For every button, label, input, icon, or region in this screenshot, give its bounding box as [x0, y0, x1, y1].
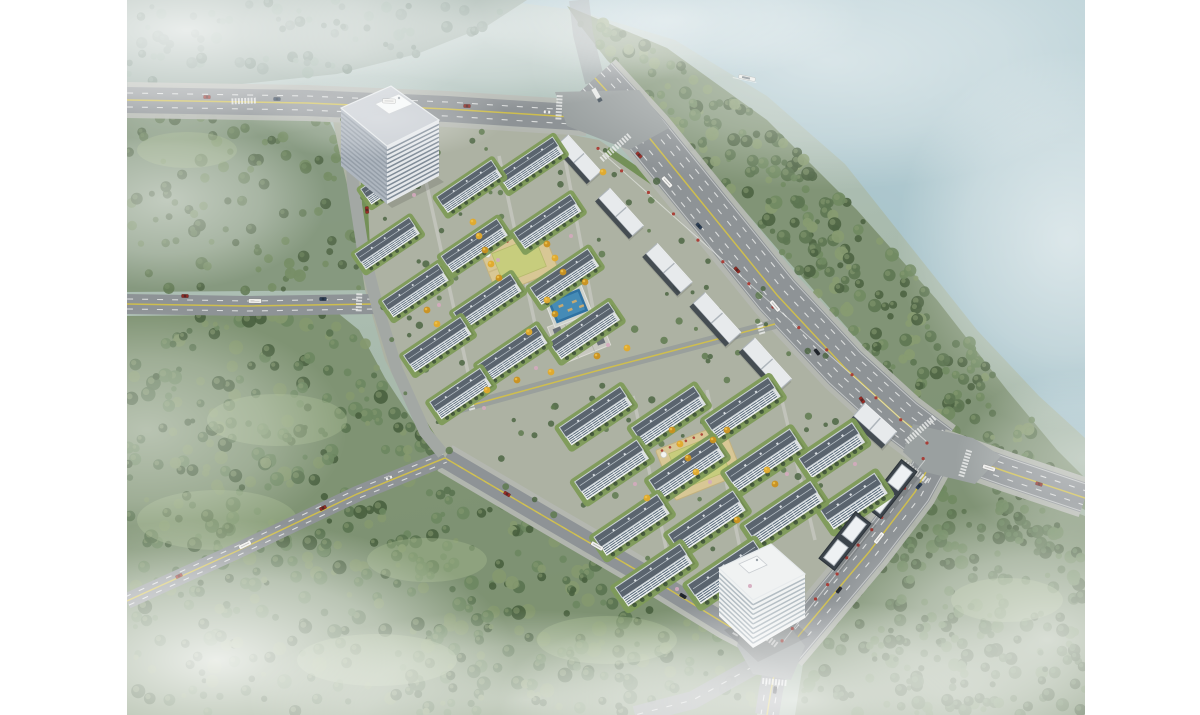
right-margin — [1085, 0, 1200, 715]
car-vehicle — [181, 294, 188, 298]
render-scene — [127, 0, 1085, 715]
bus-vehicle — [248, 299, 261, 304]
render-area — [127, 0, 1085, 715]
car-vehicle — [543, 110, 550, 114]
car-vehicle — [365, 206, 369, 213]
architectural-aerial-rendering — [0, 0, 1200, 715]
left-margin — [0, 0, 127, 715]
car-vehicle — [320, 297, 327, 300]
